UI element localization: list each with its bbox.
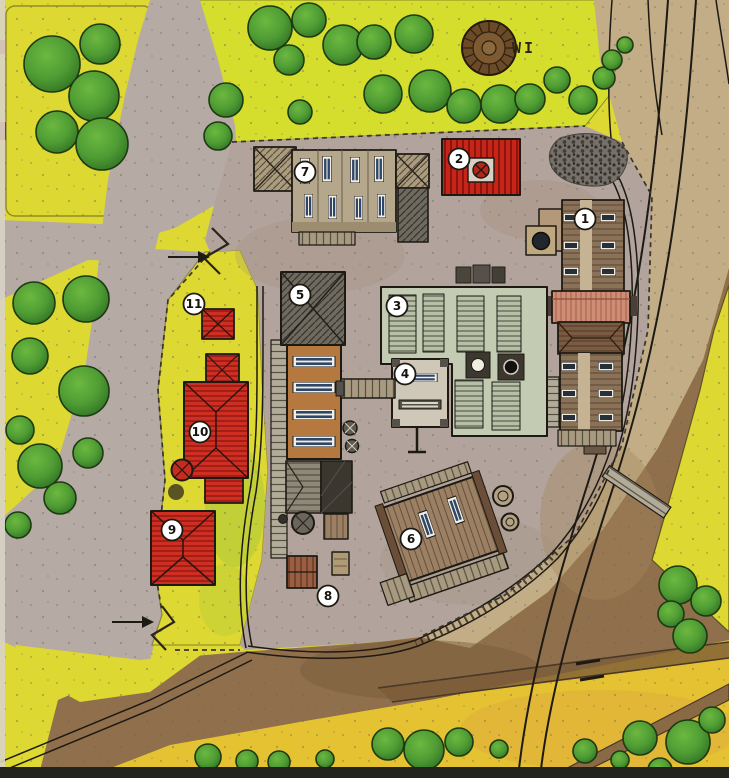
building-5-main-works-part	[279, 515, 288, 524]
conveyor-bridge	[341, 379, 395, 398]
tank	[502, 514, 519, 531]
trees-part	[288, 100, 312, 124]
building-1-workshop-row-part	[598, 413, 614, 422]
building-1-workshop-row-part	[598, 362, 614, 371]
building-10-villa-part	[205, 477, 243, 503]
building-marker-3: 3	[387, 296, 408, 317]
loading-platform	[271, 340, 287, 558]
trees-part	[76, 118, 128, 170]
building-7-office-part	[299, 232, 355, 245]
tank	[493, 486, 513, 506]
scan-edge-bottom	[0, 767, 729, 778]
trees-part	[573, 739, 597, 763]
trees-part	[59, 366, 109, 416]
building-5-main-works-part	[336, 381, 344, 396]
building-3-drying-house-part	[472, 359, 485, 372]
building-7-office-part	[304, 194, 313, 218]
trees-part	[44, 482, 76, 514]
trees-part	[73, 438, 103, 468]
chimney-base	[533, 233, 550, 250]
building-1-workshop-row-part	[563, 267, 579, 276]
building-1-workshop-row-part	[600, 213, 616, 222]
trees-part	[404, 730, 444, 770]
building-1-workshop-row-part	[578, 353, 590, 431]
trees-part	[515, 84, 545, 114]
building-marker-8: 8	[318, 586, 339, 607]
building-3-drying-house-part	[504, 360, 518, 374]
building-marker-2: 2	[449, 149, 470, 170]
trees-part	[699, 707, 725, 733]
building-9-house	[151, 511, 215, 585]
building-1-workshop-row-part	[561, 389, 577, 398]
building-1-workshop-row-part	[563, 241, 579, 250]
building-7-office-part	[350, 157, 360, 183]
trees-part	[69, 71, 119, 121]
building-3-drying-house-part	[457, 296, 484, 352]
building-3-drying-house-part	[423, 294, 444, 352]
building-11-gatehouse	[202, 309, 234, 339]
trees-part	[372, 728, 404, 760]
building-5-main-works-part	[293, 356, 335, 367]
building-number: 7	[301, 165, 309, 179]
loading-deck	[558, 430, 616, 446]
trees-part	[611, 751, 629, 769]
building-3-drying-house-part	[456, 267, 471, 283]
building-number: 8	[324, 589, 332, 603]
building-7-office-part	[328, 195, 337, 219]
trees-part	[12, 338, 48, 374]
wi-round-structure	[462, 21, 516, 75]
building-marker-10: 10	[190, 422, 211, 443]
building-number: 11	[186, 297, 203, 311]
building-marker-4: 4	[395, 364, 416, 385]
building-3-drying-house-part	[455, 380, 483, 428]
building-1-workshop-row-part	[552, 291, 630, 323]
trees-part	[6, 416, 34, 444]
trees-part	[673, 619, 707, 653]
building-7-office-part	[354, 196, 363, 220]
building-marker-1: 1	[575, 209, 596, 230]
building-4-annex-part	[399, 400, 441, 409]
building-marker-5: 5	[290, 285, 311, 306]
trees-part	[395, 15, 433, 53]
trees-part	[80, 24, 120, 64]
building-4-annex-part	[440, 359, 448, 367]
building-4-annex-part	[402, 406, 438, 408]
building-7-office-part	[322, 156, 332, 182]
building-5-main-works-part	[293, 382, 335, 393]
trees-part	[18, 444, 62, 488]
trees-part	[569, 86, 597, 114]
building-1-workshop-row-part	[561, 413, 577, 422]
building-marker-9: 9	[162, 520, 183, 541]
building-4-annex-part	[440, 419, 448, 427]
trees-part	[204, 122, 232, 150]
building-5-main-works-part	[324, 514, 348, 539]
trees-part	[544, 67, 570, 93]
building-number: 3	[393, 299, 401, 313]
trees-part	[490, 740, 508, 758]
trees-part	[36, 111, 78, 153]
building-4-annex-part	[392, 419, 400, 427]
landmark-label: WI	[512, 39, 536, 57]
building-3-drying-house-part	[492, 267, 505, 283]
building-3-drying-house-part	[497, 296, 521, 352]
building-number: 2	[455, 152, 463, 166]
trees-part	[274, 45, 304, 75]
building-number: 4	[401, 367, 409, 381]
trees-part	[409, 70, 451, 112]
building-7-office-part	[374, 156, 384, 182]
building-3-drying-house-part	[492, 382, 520, 430]
building-number: 10	[192, 425, 209, 439]
trees-part	[248, 6, 292, 50]
trees-part	[447, 89, 481, 123]
trees-part	[481, 85, 519, 123]
building-3-drying-house-part	[473, 265, 490, 283]
building-4-annex-part	[402, 402, 438, 404]
trees-part	[5, 512, 31, 538]
trees-part	[623, 721, 657, 755]
building-marker-6: 6	[401, 529, 422, 550]
building-7-office-part	[398, 188, 428, 242]
wi-round-structure-part	[482, 41, 496, 55]
building-8-store-part	[332, 552, 349, 575]
building-5-main-works-part	[293, 436, 335, 447]
building-marker-11: 11	[184, 294, 205, 315]
building-1-workshop-row-part	[630, 296, 637, 316]
trees-part	[617, 37, 633, 53]
trees-part	[445, 728, 473, 756]
trees-part	[63, 276, 109, 322]
trees-part	[13, 282, 55, 324]
scan-edge-left	[0, 0, 5, 778]
building-7-office-part	[292, 222, 396, 232]
site-plan: WI	[0, 0, 729, 778]
building-number: 9	[168, 523, 176, 537]
trees-part	[602, 50, 622, 70]
building-1-workshop-row-part	[584, 446, 606, 454]
trees-part	[209, 83, 243, 117]
building-1-workshop-row-part	[561, 362, 577, 371]
trees-part	[364, 75, 402, 113]
building-marker-7: 7	[295, 162, 316, 183]
trees-part	[691, 586, 721, 616]
building-10-villa-part	[168, 484, 184, 500]
trees-part	[316, 750, 334, 768]
building-number: 6	[407, 532, 415, 546]
trees-part	[292, 3, 326, 37]
building-1-workshop-row-part	[600, 241, 616, 250]
site-plan-canvas: WI	[0, 0, 729, 778]
building-5-main-works-part	[293, 409, 335, 420]
trees-part	[195, 744, 221, 770]
building-1-workshop-row-part	[600, 267, 616, 276]
building-7-office-part	[377, 194, 386, 218]
building-number: 5	[296, 288, 304, 302]
building-number: 1	[581, 212, 589, 226]
building-1-workshop-row-part	[598, 389, 614, 398]
trees-part	[357, 25, 391, 59]
